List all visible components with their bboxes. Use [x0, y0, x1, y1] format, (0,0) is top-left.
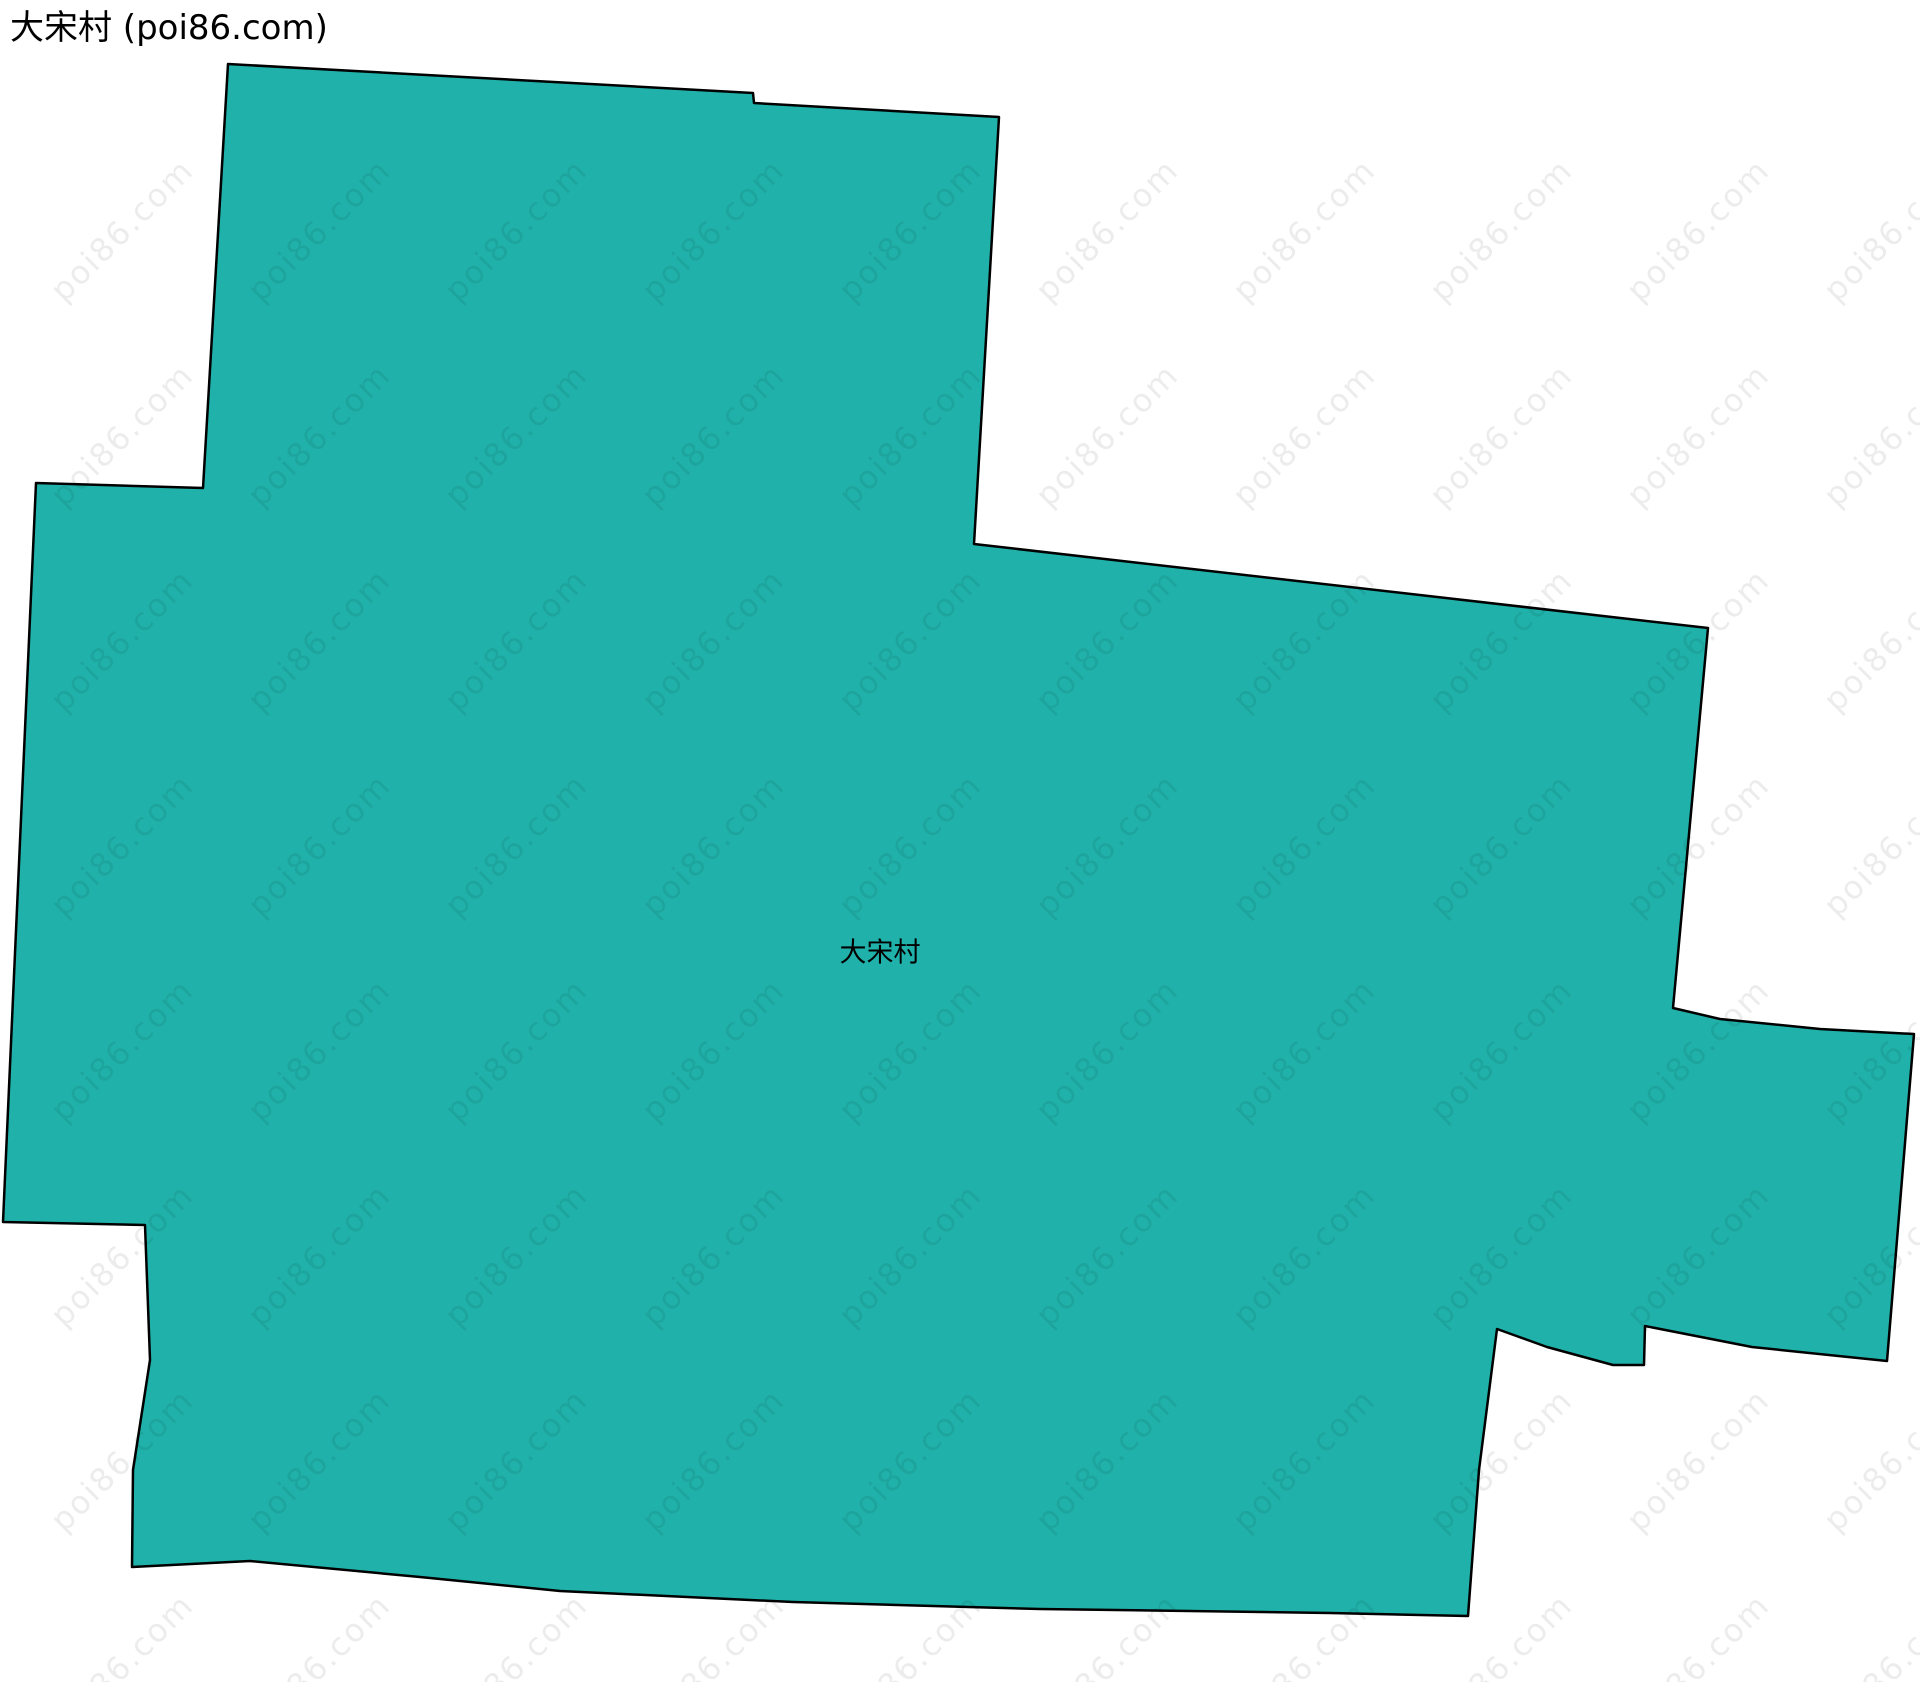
- page-title: 大宋村 (poi86.com): [10, 8, 328, 49]
- region-label: 大宋村: [840, 931, 921, 970]
- map-canvas: poi86.compoi86.compoi86.compoi86.compoi8…: [0, 0, 1920, 1682]
- boundary-map-svg: [0, 0, 1920, 1682]
- village-boundary-polygon: [3, 64, 1914, 1616]
